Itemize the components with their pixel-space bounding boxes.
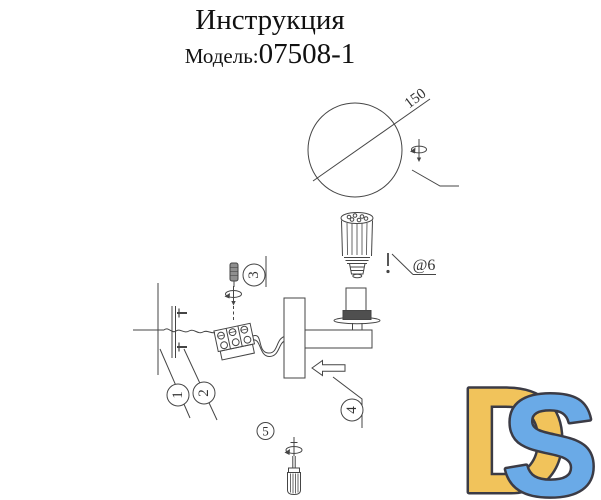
plate-screw-top — [177, 309, 187, 318]
sphere-diameter-dimension: 150 — [402, 86, 430, 112]
callout-2-number: 2 — [196, 389, 212, 397]
instruction-sheet: { "colors": { "background": "#ffffff", "… — [0, 0, 601, 500]
sphere-diameter-line — [313, 99, 430, 181]
mounting-screw-drawing — [230, 263, 238, 287]
ds-logo-letter-s: S — [502, 365, 598, 500]
bracket-arm — [305, 330, 372, 348]
screwdriver-drawing — [285, 437, 303, 495]
glass-sphere-drawing — [308, 99, 459, 197]
callout-1-number: 1 — [170, 391, 186, 399]
screwdriver-handle — [288, 473, 301, 495]
callout-1-leader — [160, 349, 190, 418]
wall-and-plate-drawing — [133, 283, 215, 375]
assembly-diagram: 150 — [0, 0, 601, 500]
plate-screw-bottom — [177, 343, 187, 352]
callout-4-number: 4 — [344, 406, 360, 414]
screwdriver-rotate-icon — [285, 447, 303, 456]
mounting-hole-dimension: @6 — [413, 257, 436, 274]
insert-direction-arrow-icon — [312, 361, 345, 376]
bulb-screw-base — [350, 264, 366, 275]
socket-ring — [343, 311, 371, 320]
bracket-backplate — [284, 298, 305, 378]
callout-3-number: 3 — [246, 271, 262, 279]
bulb-drawing — [341, 213, 373, 278]
screw-rotate-direction-icon — [225, 286, 242, 306]
wall-plug-mark — [386, 253, 389, 273]
ds-logo: D S — [459, 356, 598, 500]
sphere-leader-line — [412, 170, 459, 186]
socket-cylinder — [346, 288, 366, 311]
sphere-outline — [308, 103, 402, 197]
callout-5-number: 5 — [262, 424, 269, 439]
connecting-wires-drawing — [253, 335, 286, 356]
terminal-block-drawing — [214, 323, 256, 360]
rotate-direction-icon — [410, 139, 427, 162]
